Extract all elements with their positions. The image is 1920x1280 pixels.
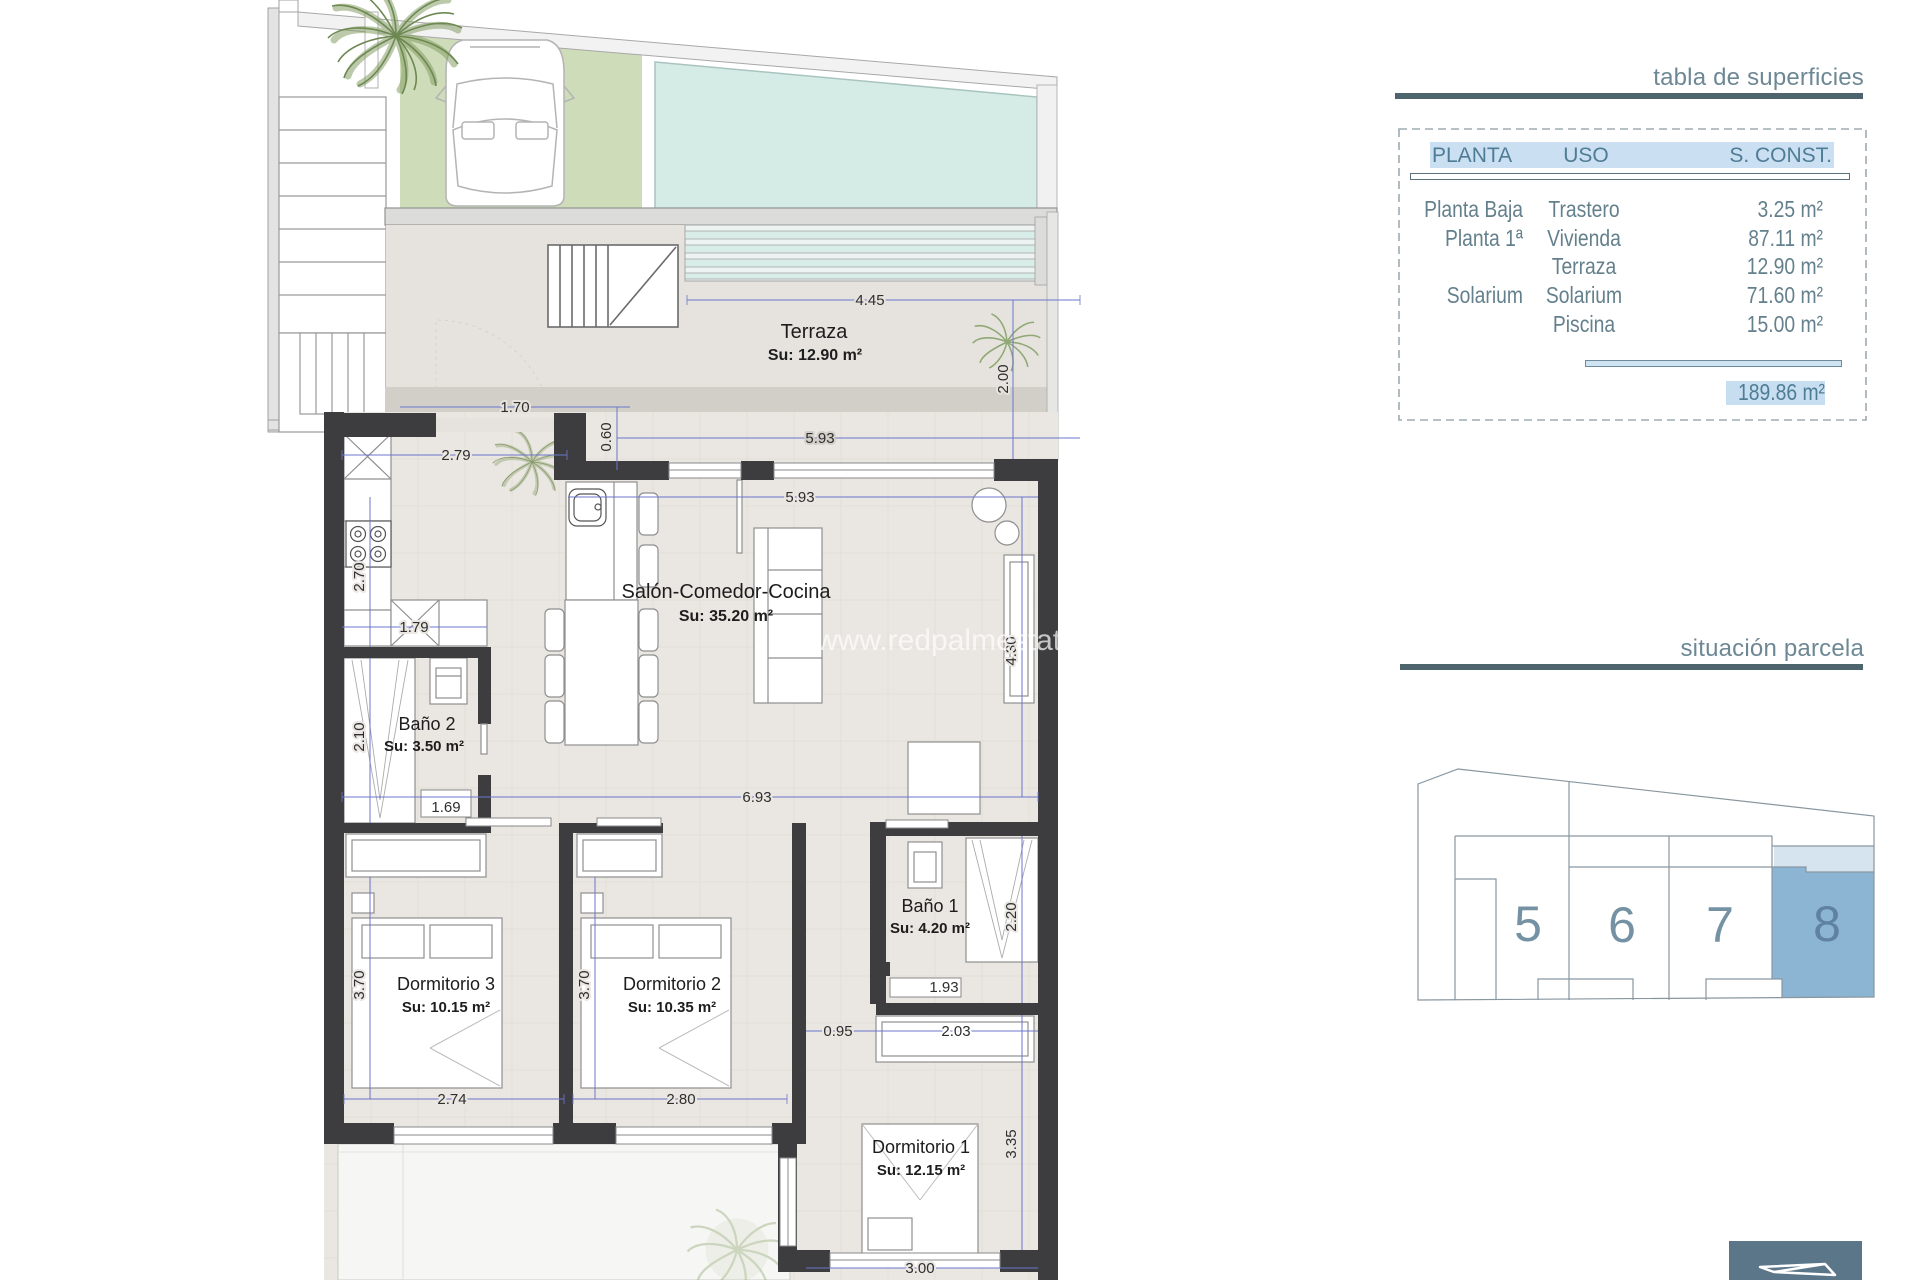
svg-text:2.20: 2.20: [1003, 902, 1020, 931]
svg-text:www.redpalmestate.: www.redpalmestate.: [815, 624, 1086, 657]
svg-text:6: 6: [1608, 897, 1636, 953]
svg-text:1.69: 1.69: [431, 799, 460, 816]
svg-text:2.79: 2.79: [441, 447, 470, 464]
svg-text:3.35: 3.35: [1003, 1129, 1020, 1158]
svg-text:Baño 2: Baño 2: [398, 714, 455, 734]
svg-text:Su: 12.15 m²: Su: 12.15 m²: [877, 1162, 965, 1179]
svg-text:Dormitorio 1: Dormitorio 1: [872, 1137, 970, 1157]
svg-text:Su: 3.50 m²: Su: 3.50 m²: [384, 738, 464, 755]
svg-text:2.74: 2.74: [437, 1091, 466, 1108]
svg-text:1.79: 1.79: [399, 619, 428, 636]
svg-text:Su: 10.15 m²: Su: 10.15 m²: [402, 999, 490, 1016]
svg-text:5.93: 5.93: [785, 489, 814, 506]
svg-text:Dormitorio 2: Dormitorio 2: [623, 974, 721, 994]
svg-text:3.70: 3.70: [351, 970, 368, 999]
svg-text:Baño 1: Baño 1: [901, 896, 958, 916]
svg-text:1.93: 1.93: [929, 979, 958, 996]
svg-text:3.00: 3.00: [905, 1260, 934, 1277]
svg-text:2.03: 2.03: [941, 1023, 970, 1040]
svg-text:4.45: 4.45: [855, 292, 884, 309]
svg-text:8: 8: [1813, 896, 1841, 952]
svg-text:Terraza: Terraza: [781, 321, 849, 343]
svg-text:6.93: 6.93: [742, 789, 771, 806]
svg-text:Su: 35.20 m²: Su: 35.20 m²: [679, 608, 773, 625]
svg-text:5.93: 5.93: [805, 430, 834, 447]
svg-text:2.70: 2.70: [351, 562, 368, 591]
svg-text:3.70: 3.70: [576, 970, 593, 999]
svg-text:5: 5: [1514, 896, 1542, 952]
svg-text:0.60: 0.60: [598, 422, 615, 451]
svg-text:1.70: 1.70: [500, 399, 529, 416]
svg-text:2.80: 2.80: [666, 1091, 695, 1108]
svg-text:Dormitorio 3: Dormitorio 3: [397, 974, 495, 994]
svg-text:2.00: 2.00: [995, 364, 1012, 393]
svg-text:Salón-Comedor-Cocina: Salón-Comedor-Cocina: [622, 581, 832, 603]
svg-text:7: 7: [1706, 897, 1734, 953]
svg-text:0.95: 0.95: [823, 1023, 852, 1040]
svg-text:Su: 12.90 m²: Su: 12.90 m²: [768, 347, 862, 364]
svg-text:2.10: 2.10: [351, 722, 368, 751]
svg-text:Su: 4.20 m²: Su: 4.20 m²: [890, 920, 970, 937]
svg-text:Su: 10.35 m²: Su: 10.35 m²: [628, 999, 716, 1016]
